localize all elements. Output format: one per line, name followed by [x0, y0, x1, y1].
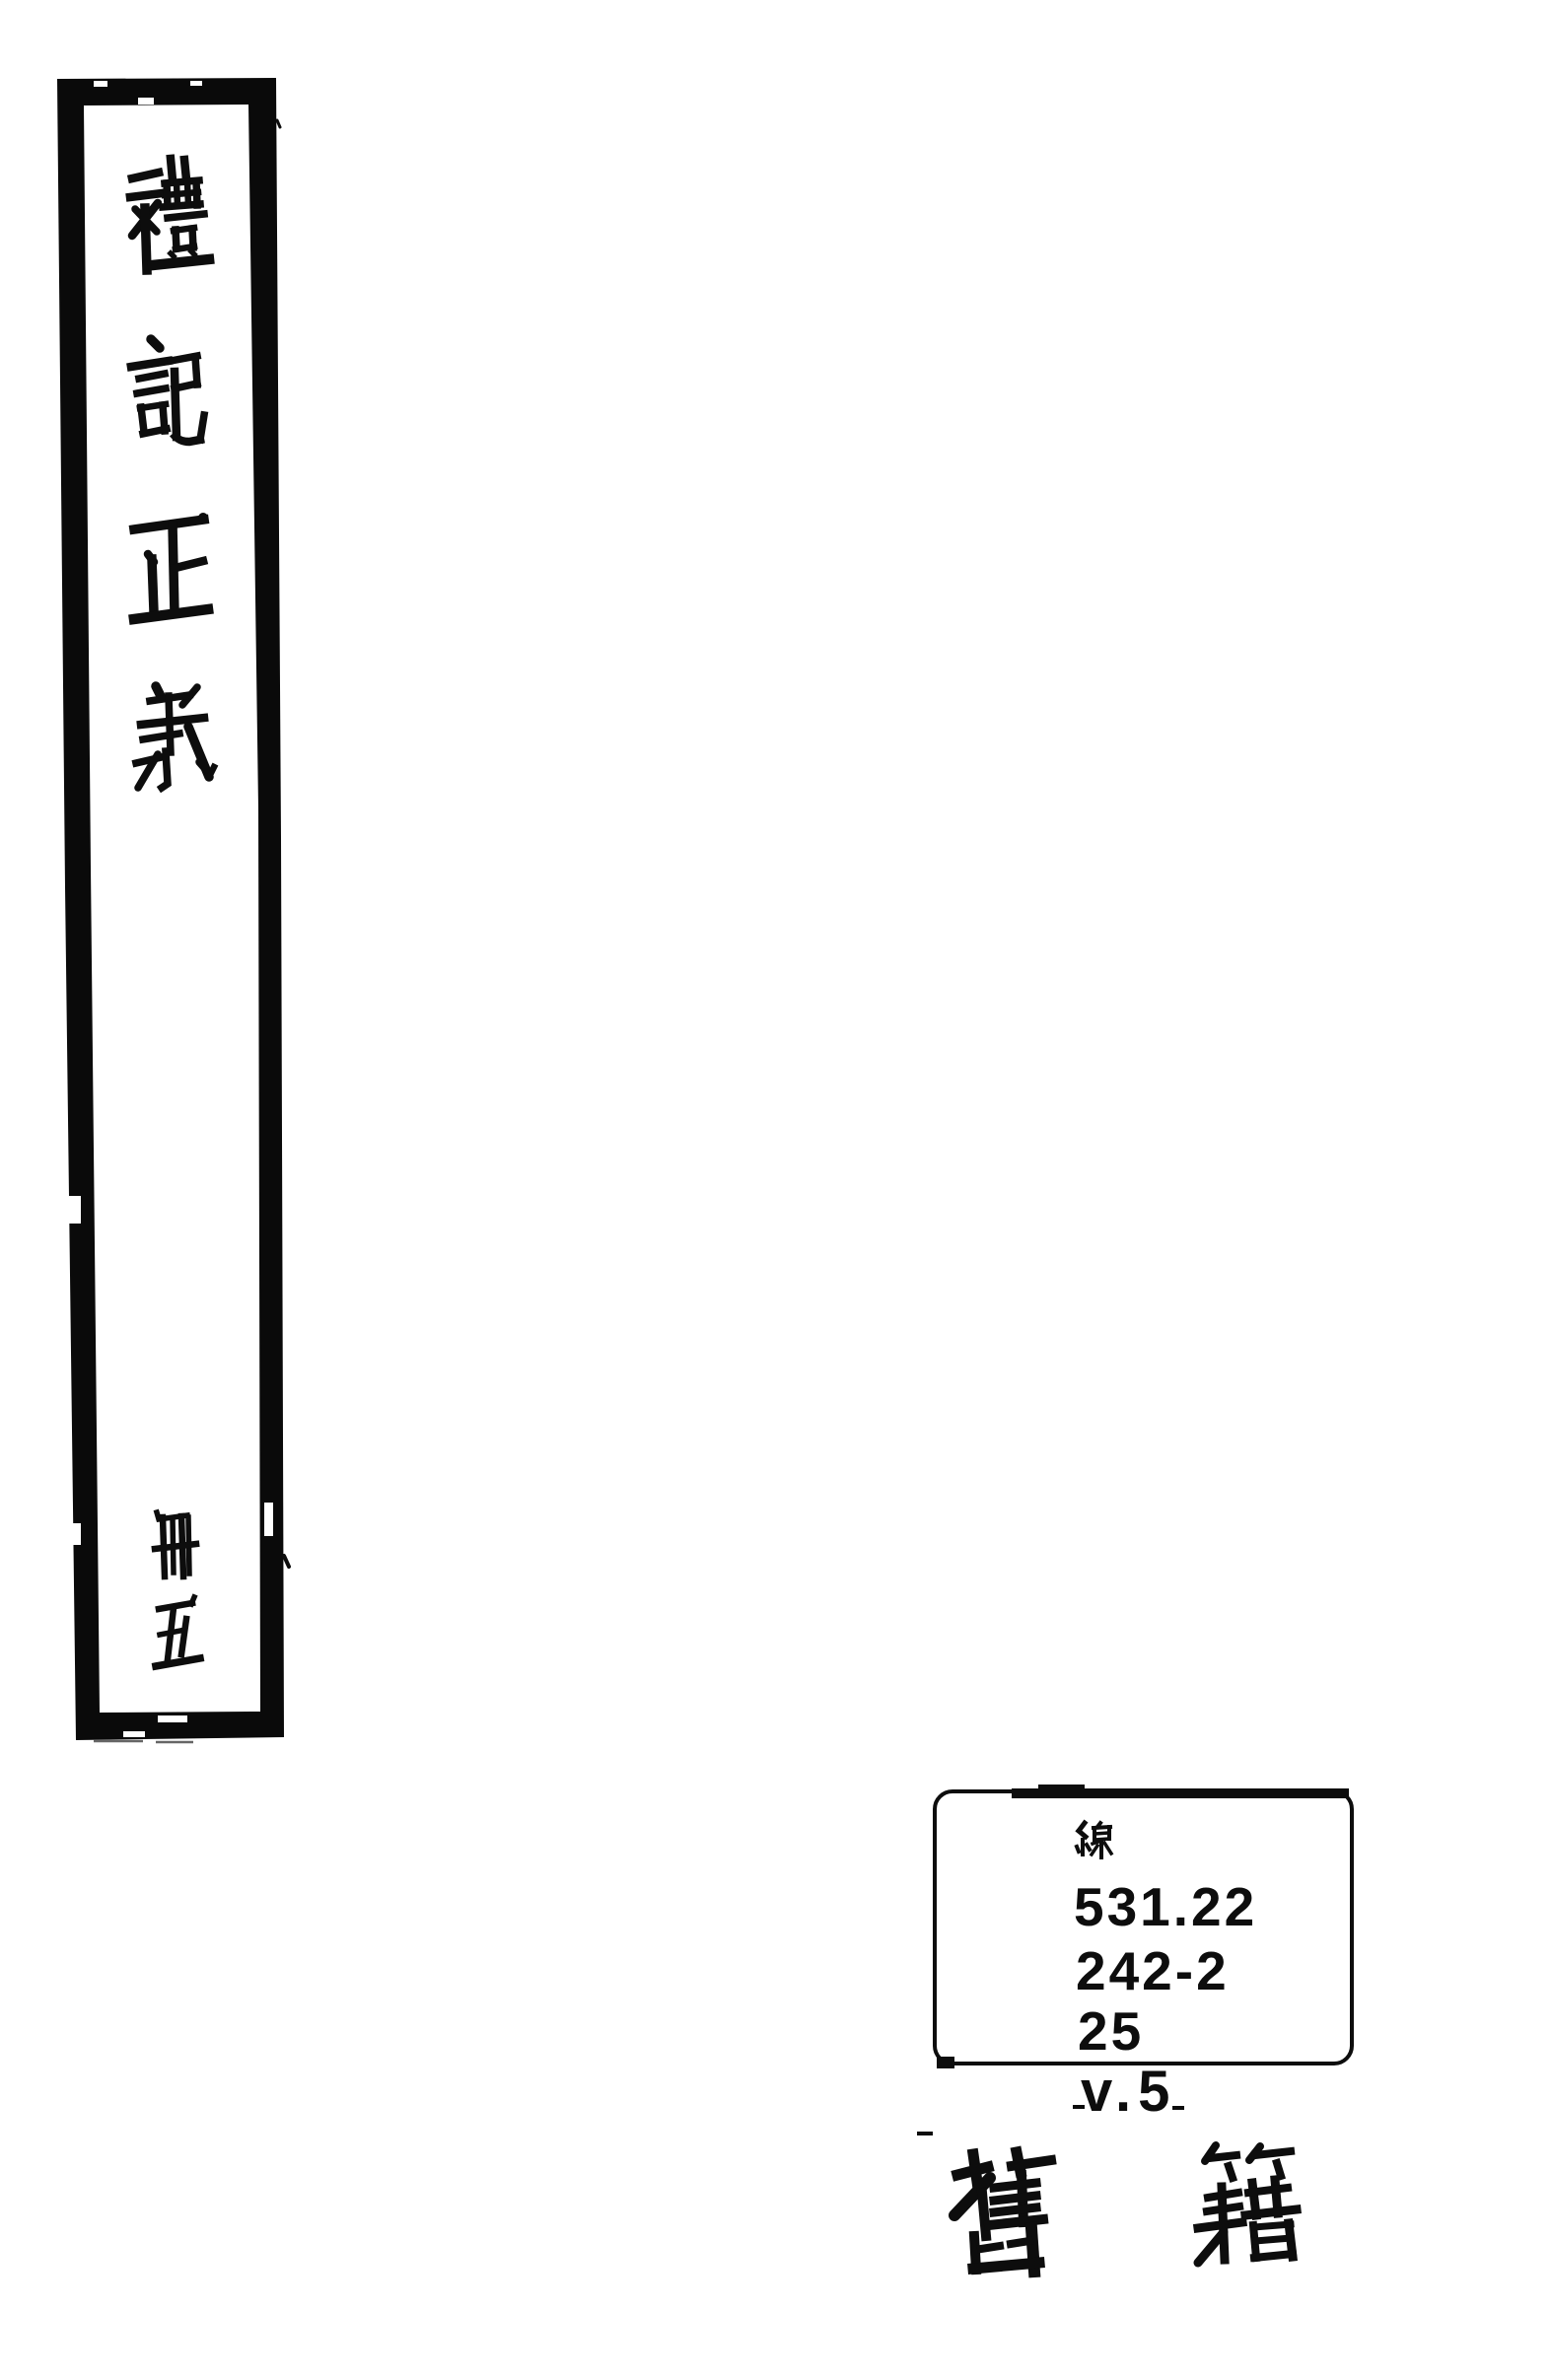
svg-text:531.22: 531.22	[1074, 1876, 1257, 1937]
svg-text:242-2: 242-2	[1076, 1940, 1230, 2001]
svg-text:25: 25	[1078, 2000, 1144, 2062]
svg-text:v.5: v.5	[1081, 2060, 1176, 2124]
